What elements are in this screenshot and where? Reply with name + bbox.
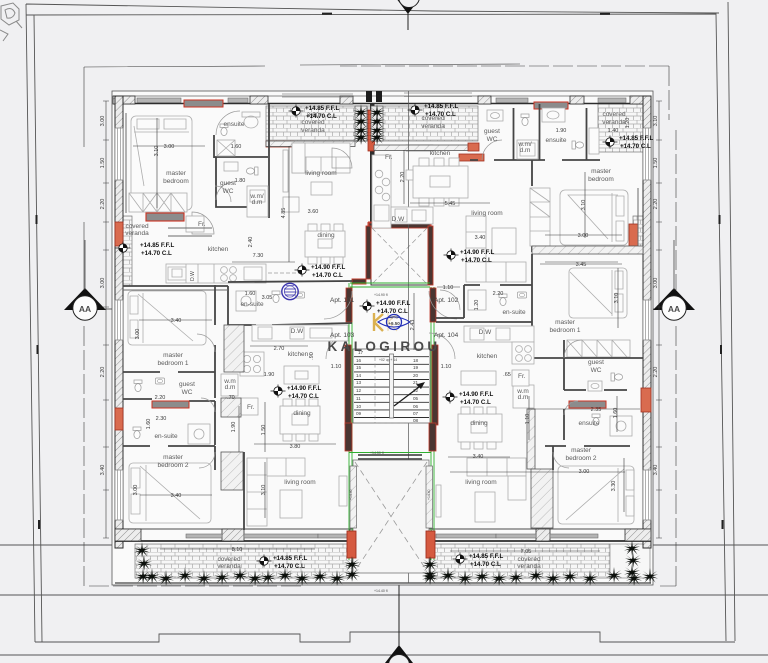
svg-text:+14.40 fl: +14.40 fl: [374, 589, 388, 593]
svg-text:2.20: 2.20: [653, 367, 659, 378]
svg-text:D.W: D.W: [291, 328, 305, 335]
svg-text:+14.90 F.F.L: +14.90 F.F.L: [311, 264, 345, 271]
svg-text:Apt. 104: Apt. 104: [434, 332, 459, 339]
svg-text:+14.70 C.L: +14.70 C.L: [470, 561, 501, 568]
svg-text:+14.70 C.L: +14.70 C.L: [312, 272, 343, 279]
svg-text:+14.70 C.L: +14.70 C.L: [425, 111, 456, 118]
svg-text:+14.70 C.L: +14.70 C.L: [620, 143, 651, 150]
svg-text:covered: covered: [602, 111, 626, 118]
svg-text:3.40: 3.40: [100, 465, 106, 476]
svg-text:WC: WC: [182, 389, 193, 396]
svg-text:+14.40: +14.40: [349, 489, 353, 500]
svg-text:WC: WC: [223, 188, 234, 195]
svg-text:15: 15: [356, 365, 362, 370]
svg-text:13: 13: [356, 380, 362, 385]
svg-text:+14.90 fl: +14.90 fl: [374, 293, 388, 297]
svg-text:veranda: veranda: [421, 123, 445, 130]
svg-text:covered: covered: [301, 119, 325, 126]
svg-text:2.20: 2.20: [155, 395, 166, 401]
svg-text:D.W: D.W: [479, 329, 493, 336]
svg-text:1.10: 1.10: [443, 285, 454, 291]
svg-text:KALOGIROU: KALOGIROU: [327, 339, 440, 354]
svg-text:2.20: 2.20: [100, 367, 106, 378]
svg-text:3.00: 3.00: [135, 329, 141, 340]
svg-text:3.05: 3.05: [262, 295, 273, 301]
svg-text:+14.90 F.F.L: +14.90 F.F.L: [459, 391, 493, 398]
svg-text:2.20: 2.20: [653, 199, 659, 210]
svg-text:3.10: 3.10: [614, 293, 620, 304]
svg-text:07: 07: [413, 411, 419, 416]
svg-text:Fr.: Fr.: [198, 221, 206, 228]
svg-text:AA: AA: [668, 304, 680, 314]
svg-text:3.40: 3.40: [473, 454, 484, 460]
svg-text:kitchen: kitchen: [430, 150, 451, 157]
svg-text:12: 12: [356, 388, 362, 393]
svg-text:master: master: [555, 319, 576, 326]
svg-text:D.W: D.W: [190, 271, 196, 281]
svg-text:WC: WC: [487, 136, 498, 143]
svg-text:+14.70 C.L: +14.70 C.L: [377, 308, 408, 315]
svg-text:veranda: veranda: [602, 119, 626, 126]
svg-text:living room: living room: [284, 479, 315, 486]
svg-text:bedroom 2: bedroom 2: [157, 462, 188, 469]
svg-text:2.20: 2.20: [400, 172, 406, 183]
svg-text:3.80: 3.80: [290, 444, 301, 450]
svg-text:Apt. 103: Apt. 103: [330, 332, 355, 339]
svg-text:7.05: 7.05: [521, 549, 532, 555]
svg-text:1.50: 1.50: [261, 425, 267, 436]
svg-text:1.10: 1.10: [331, 364, 342, 370]
svg-text:3.00: 3.00: [653, 278, 659, 289]
svg-text:+14.70 C.L: +14.70 C.L: [461, 257, 492, 264]
svg-text:14: 14: [356, 373, 362, 378]
svg-text:covered: covered: [125, 223, 149, 230]
svg-text:master: master: [571, 447, 592, 454]
svg-text:dining: dining: [317, 232, 335, 239]
svg-text:bedroom: bedroom: [163, 178, 189, 185]
svg-text:+14.90 F.F.L: +14.90 F.F.L: [376, 300, 410, 307]
svg-text:Fr.: Fr.: [518, 373, 526, 380]
svg-text:veranda: veranda: [217, 563, 241, 570]
svg-text:Apt. 102: Apt. 102: [434, 297, 459, 304]
svg-text:3.00: 3.00: [133, 485, 139, 496]
svg-text:+14.85 F.F.L: +14.85 F.F.L: [424, 103, 458, 110]
svg-text:21: 21: [413, 380, 419, 385]
svg-text:Fr.: Fr.: [385, 154, 393, 161]
svg-text:3.30: 3.30: [611, 481, 617, 492]
svg-text:11: 11: [356, 396, 361, 401]
svg-text:.65: .65: [503, 372, 511, 378]
svg-text:2.35: 2.35: [591, 407, 602, 413]
svg-text:+14.85 F.F.L: +14.85 F.F.L: [469, 553, 503, 560]
svg-text:d.m: d.m: [252, 199, 263, 206]
svg-text:+14.50 fl: +14.50 fl: [370, 451, 384, 455]
svg-text:1.90: 1.90: [556, 128, 567, 134]
svg-text:3.40: 3.40: [653, 465, 659, 476]
svg-text:3.45: 3.45: [576, 262, 587, 268]
svg-text:18: 18: [413, 358, 419, 363]
svg-text:2.40: 2.40: [248, 237, 254, 248]
svg-text:3.40: 3.40: [171, 318, 182, 324]
svg-text:.90: .90: [309, 352, 315, 360]
svg-text:+14.70 C.L: +14.70 C.L: [288, 393, 319, 400]
svg-text:5.45: 5.45: [445, 201, 456, 207]
svg-text:en-suite: en-suite: [240, 301, 264, 308]
svg-text:master: master: [166, 170, 187, 177]
svg-text:guest: guest: [484, 128, 500, 135]
svg-text:dining: dining: [293, 410, 311, 417]
svg-text:2.30: 2.30: [156, 416, 167, 422]
svg-text:master: master: [163, 352, 184, 359]
svg-text:1.90: 1.90: [264, 372, 275, 378]
svg-text:veranda: veranda: [125, 230, 149, 237]
svg-text:+14.70 C.L: +14.70 C.L: [141, 250, 172, 257]
svg-text:1.50: 1.50: [100, 158, 106, 169]
svg-text:-.70: -.70: [225, 395, 234, 401]
svg-text:+14.90 F.F.L: +14.90 F.F.L: [460, 249, 494, 256]
svg-text:bedroom: bedroom: [588, 176, 614, 183]
svg-text:3.00: 3.00: [579, 469, 590, 475]
svg-text:D.W: D.W: [392, 216, 406, 223]
svg-text:bedroom 1: bedroom 1: [549, 327, 580, 334]
svg-text:bedroom 1: bedroom 1: [157, 360, 188, 367]
svg-text:d.m: d.m: [225, 384, 236, 391]
svg-text:+02 up + 14: +02 up + 14: [379, 358, 397, 362]
svg-text:ensuite: ensuite: [579, 420, 600, 427]
svg-text:master: master: [591, 168, 612, 175]
svg-text:3.10: 3.10: [154, 146, 160, 157]
svg-text:05: 05: [413, 396, 419, 401]
svg-text:master: master: [163, 454, 184, 461]
svg-text:3.10: 3.10: [261, 485, 267, 496]
svg-text:1.90: 1.90: [231, 422, 237, 433]
svg-text:guest: guest: [179, 381, 195, 388]
svg-text:8.10: 8.10: [232, 547, 243, 553]
svg-text:3.00: 3.00: [164, 144, 175, 150]
svg-text:20: 20: [413, 373, 419, 378]
svg-text:+14.85 F.F.L: +14.85 F.F.L: [619, 135, 653, 142]
svg-text:1.20: 1.20: [474, 300, 480, 311]
svg-text:+14.85 F.F.L: +14.85 F.F.L: [305, 105, 339, 112]
svg-text:1.60: 1.60: [231, 144, 242, 150]
svg-text:1.20: 1.20: [625, 118, 631, 129]
svg-text:19: 19: [413, 365, 419, 370]
svg-text:3.10: 3.10: [581, 200, 587, 211]
svg-text:bedroom 2: bedroom 2: [565, 455, 596, 462]
svg-text:1.60: 1.60: [613, 408, 619, 419]
svg-text:1.60: 1.60: [146, 419, 152, 430]
svg-text:ΑΡΙΘ: ΑΡΙΘ: [390, 316, 399, 320]
svg-text:10: 10: [356, 404, 362, 409]
svg-text:kitchen: kitchen: [208, 246, 229, 253]
svg-text:3.60: 3.60: [308, 209, 319, 215]
svg-text:2.20: 2.20: [493, 291, 504, 297]
svg-text:7.30: 7.30: [253, 253, 264, 259]
svg-text:+14.40: +14.40: [427, 489, 431, 500]
svg-text:22: 22: [413, 388, 419, 393]
svg-text:1.50: 1.50: [653, 158, 659, 169]
svg-text:08: 08: [413, 418, 419, 423]
svg-text:en-suite: en-suite: [154, 433, 178, 440]
svg-text:en-suite: en-suite: [502, 309, 526, 316]
svg-text:kitchen: kitchen: [477, 353, 498, 360]
svg-text:Fr.: Fr.: [247, 404, 255, 411]
svg-text:3.40: 3.40: [171, 493, 182, 499]
svg-text:covered: covered: [517, 556, 541, 563]
svg-text:1.10: 1.10: [525, 414, 531, 425]
svg-text:1.60: 1.60: [245, 291, 256, 297]
svg-text:veranda: veranda: [517, 563, 541, 570]
svg-text:AA: AA: [79, 304, 91, 314]
svg-text:1.40: 1.40: [608, 128, 619, 134]
svg-text:2.43: 2.43: [410, 320, 416, 331]
svg-text:kitchen: kitchen: [288, 351, 309, 358]
svg-text:3.00: 3.00: [100, 278, 106, 289]
svg-text:+9.50: +9.50: [388, 321, 400, 326]
svg-text:d.m: d.m: [518, 394, 529, 401]
svg-text:d.m: d.m: [520, 147, 531, 154]
svg-text:3.40: 3.40: [475, 235, 486, 241]
svg-text:WC: WC: [591, 367, 602, 374]
svg-text:09: 09: [356, 411, 362, 416]
svg-text:+14.85 F.F.L: +14.85 F.F.L: [273, 555, 307, 562]
svg-text:3.10: 3.10: [653, 116, 659, 127]
svg-text:+14.70 C.L: +14.70 C.L: [306, 113, 337, 120]
svg-text:covered: covered: [217, 556, 241, 563]
svg-text:living room: living room: [465, 479, 496, 486]
svg-text:living room: living room: [471, 210, 502, 217]
svg-text:4.85: 4.85: [281, 208, 287, 219]
svg-text:Apt. 101: Apt. 101: [330, 297, 355, 304]
svg-text:living room: living room: [305, 170, 336, 177]
svg-text:+14.70 C.L: +14.70 C.L: [460, 399, 491, 406]
svg-text:guest: guest: [588, 359, 604, 366]
svg-text:+14.85 F.F.L: +14.85 F.F.L: [140, 242, 174, 249]
svg-text:2.70: 2.70: [274, 346, 285, 352]
svg-text:+14.70 C.L: +14.70 C.L: [274, 563, 305, 570]
svg-text:3.00: 3.00: [578, 233, 589, 239]
svg-text:1.80: 1.80: [235, 178, 246, 184]
svg-text:1.10: 1.10: [441, 364, 452, 370]
svg-text:ensuite: ensuite: [546, 137, 567, 144]
svg-text:+14.90 F.F.L: +14.90 F.F.L: [287, 385, 321, 392]
svg-text:ensuite: ensuite: [224, 121, 245, 128]
svg-text:3.00: 3.00: [100, 116, 106, 127]
svg-text:2.20: 2.20: [100, 199, 106, 210]
svg-text:dining: dining: [470, 420, 488, 427]
svg-text:16: 16: [356, 358, 362, 363]
svg-text:veranda: veranda: [301, 127, 325, 134]
svg-text:06: 06: [413, 404, 419, 409]
